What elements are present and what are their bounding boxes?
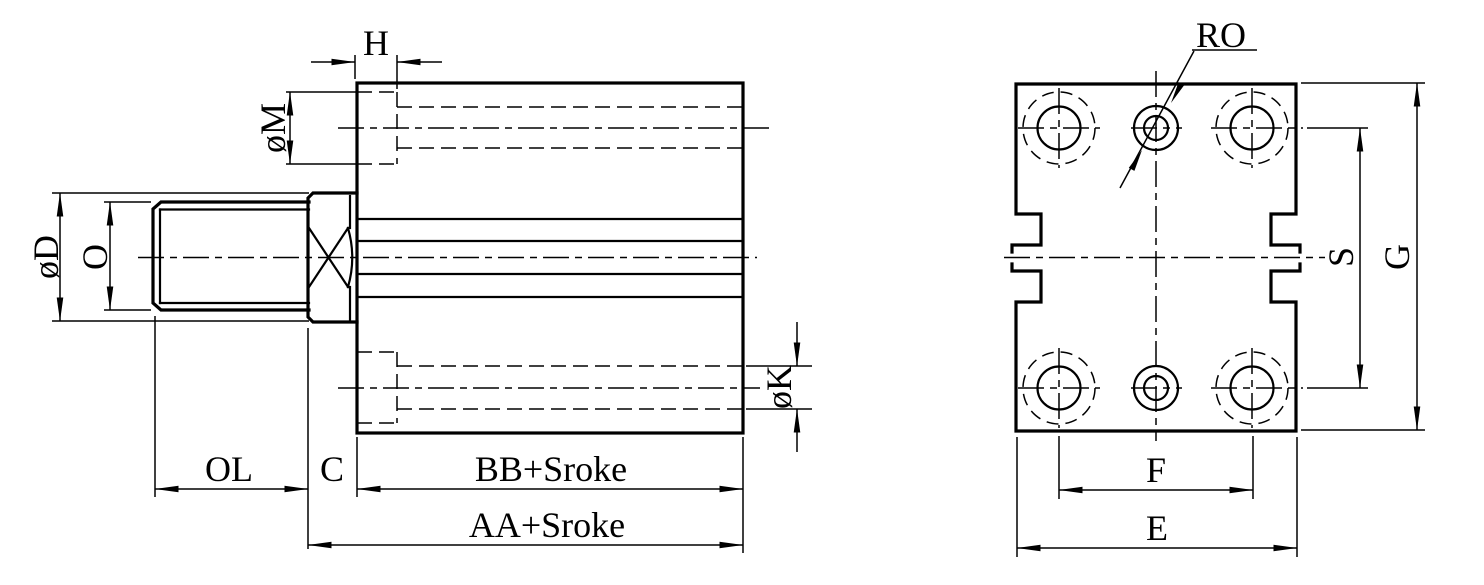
dim-label-o: O (75, 244, 115, 270)
dimension-h: H (311, 23, 442, 89)
dimension-aa: AA+Sroke (308, 505, 743, 545)
port-bore-top (338, 92, 773, 164)
dim-label-aa: AA+Sroke (469, 505, 625, 545)
dim-label-c: C (320, 449, 344, 489)
leader-ro: RO (1120, 15, 1257, 188)
dim-label-d: øD (26, 235, 66, 279)
dim-label-f: F (1146, 450, 1166, 490)
dimension-k: øK (746, 322, 812, 452)
mounting-hole-top-right (1211, 88, 1303, 168)
dimension-s: S (1307, 128, 1368, 388)
dimension-f: F (1059, 436, 1253, 499)
dim-label-ol: OL (205, 449, 253, 489)
mounting-hole-bottom-right (1211, 348, 1303, 428)
dim-label-s: S (1321, 247, 1361, 267)
dim-label-g: G (1377, 244, 1417, 270)
dim-label-e: E (1146, 508, 1168, 548)
dimension-o: O (75, 202, 151, 310)
dim-label-m: øM (253, 103, 293, 153)
leader-arrowhead (1129, 150, 1142, 171)
port-hole-top (1131, 106, 1182, 150)
drawing-sheet: H øM øD O øK (0, 0, 1484, 585)
dim-label-ro: RO (1196, 15, 1246, 55)
dimension-c: C (320, 437, 357, 497)
dim-label-k: øK (759, 365, 799, 409)
mounting-hole-top-left (1018, 88, 1100, 168)
cylinder-body (138, 83, 757, 433)
technical-drawing: H øM øD O øK (0, 0, 1484, 585)
mounting-hole-bottom-left (1018, 348, 1100, 428)
dimension-g: G (1301, 83, 1425, 430)
side-view: H øM øD O øK (26, 23, 812, 553)
rod-outline (153, 202, 309, 310)
port-bore-bottom (338, 352, 760, 423)
dimension-ol: OL (155, 316, 308, 549)
dim-label-h: H (363, 23, 389, 63)
end-view: RO S G F E (1004, 15, 1425, 557)
dim-label-bb: BB+Sroke (475, 449, 627, 489)
end-body (1004, 71, 1325, 441)
piston-rod (153, 202, 309, 310)
